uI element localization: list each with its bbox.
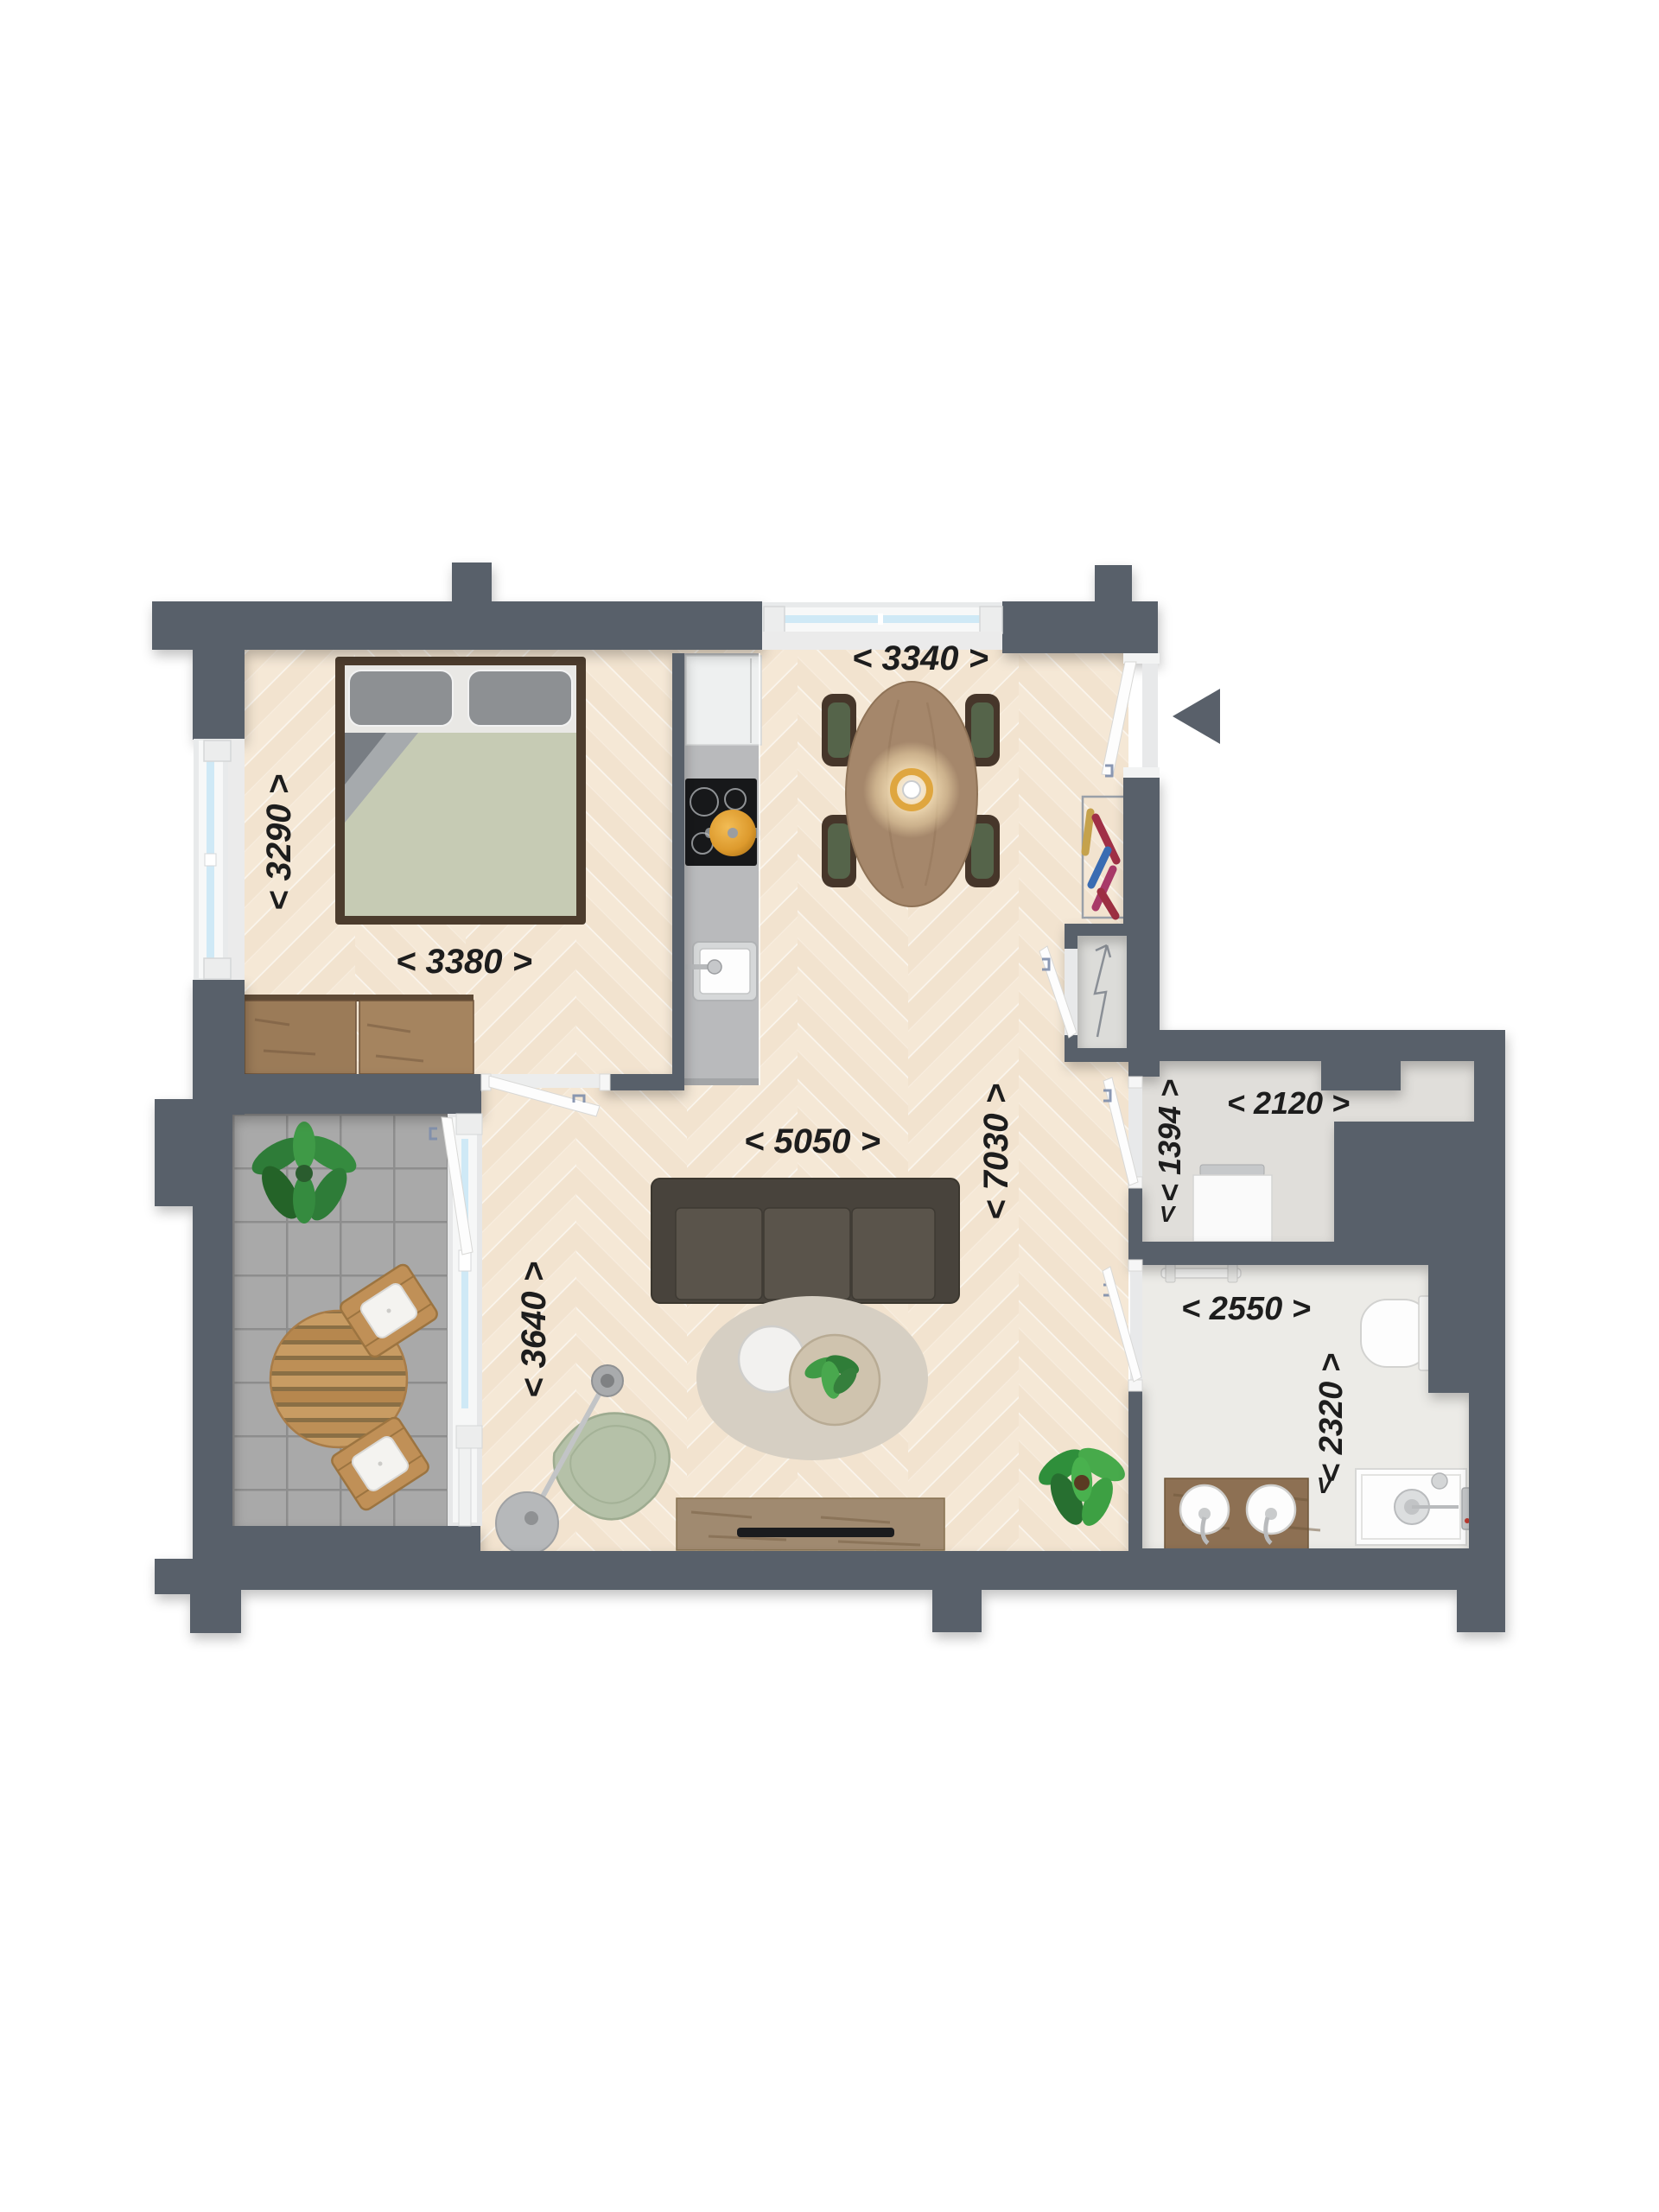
svg-text:V: V — [1317, 1472, 1334, 1498]
svg-text:< 2120 >: < 2120 > — [1227, 1085, 1350, 1121]
svg-text:V: V — [1160, 1201, 1177, 1227]
svg-text:< 5050 >: < 5050 > — [744, 1122, 880, 1160]
svg-text:< 2550 >: < 2550 > — [1181, 1291, 1311, 1327]
svg-text:< 3380 >: < 3380 > — [396, 943, 532, 981]
svg-text:< 3340 >: < 3340 > — [852, 639, 988, 677]
svg-text:< 7030 >: < 7030 > — [977, 1084, 1015, 1220]
svg-text:< 3640 >: < 3640 > — [515, 1262, 553, 1398]
svg-text:< 3290 >: < 3290 > — [260, 774, 298, 911]
svg-text:< 1394 >: < 1394 > — [1152, 1079, 1187, 1202]
svg-text:< 2320 >: < 2320 > — [1313, 1353, 1350, 1483]
